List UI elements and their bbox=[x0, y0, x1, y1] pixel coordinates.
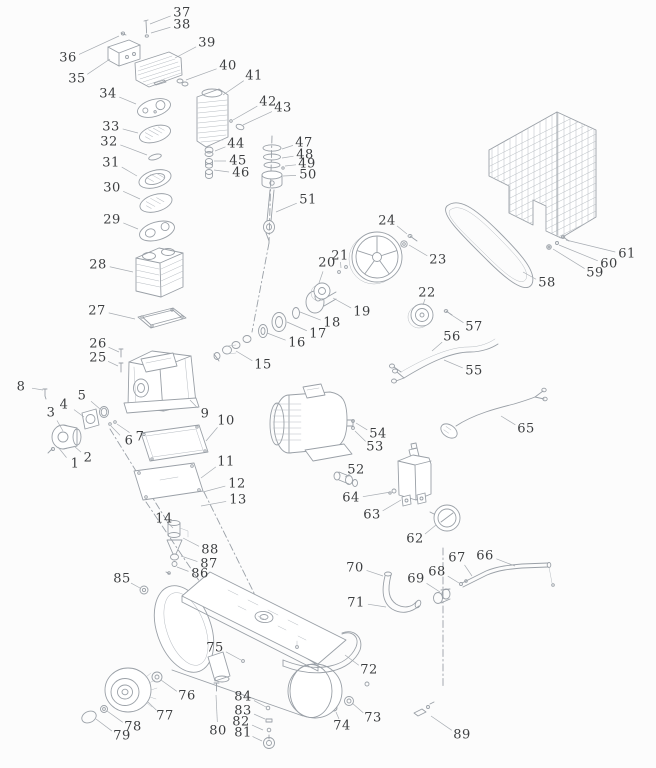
part-label-62: 62 bbox=[406, 532, 424, 547]
part-label-19: 19 bbox=[353, 305, 371, 320]
part-label-14: 14 bbox=[155, 512, 173, 527]
part-label-53: 53 bbox=[366, 440, 384, 455]
part-label-11: 11 bbox=[217, 455, 235, 470]
part-label-76: 76 bbox=[178, 689, 196, 704]
part-label-84: 84 bbox=[234, 690, 252, 705]
part-label-21: 21 bbox=[331, 249, 349, 264]
part-label-52: 52 bbox=[347, 463, 365, 478]
part-label-89: 89 bbox=[453, 728, 471, 743]
part-label-65: 65 bbox=[517, 422, 535, 437]
part-label-32: 32 bbox=[100, 135, 118, 150]
part-label-67: 67 bbox=[448, 551, 466, 566]
part-label-73: 73 bbox=[364, 711, 382, 726]
part-label-23: 23 bbox=[429, 253, 447, 268]
part-label-63: 63 bbox=[363, 508, 381, 523]
part-label-83: 83 bbox=[234, 704, 252, 719]
part-label-16: 16 bbox=[288, 336, 306, 351]
part-label-79: 79 bbox=[113, 729, 131, 744]
part-label-6: 6 bbox=[125, 434, 134, 449]
part-label-50: 50 bbox=[299, 168, 317, 183]
part-label-30: 30 bbox=[103, 181, 121, 196]
part-label-77: 77 bbox=[156, 709, 174, 724]
part-label-24: 24 bbox=[378, 214, 396, 229]
part-label-54: 54 bbox=[369, 427, 387, 442]
part-label-75: 75 bbox=[206, 641, 224, 656]
part-label-80: 80 bbox=[209, 724, 227, 739]
part-label-7: 7 bbox=[136, 430, 145, 445]
part-label-26: 26 bbox=[89, 337, 107, 352]
part-label-43: 43 bbox=[274, 101, 292, 116]
part-label-22: 22 bbox=[418, 286, 436, 301]
part-label-72: 72 bbox=[360, 663, 378, 678]
part-label-15: 15 bbox=[254, 358, 272, 373]
part-label-34: 34 bbox=[99, 87, 117, 102]
part-label-29: 29 bbox=[103, 213, 121, 228]
part-label-61: 61 bbox=[618, 247, 636, 262]
part-label-18: 18 bbox=[323, 316, 341, 331]
part-label-71: 71 bbox=[347, 596, 365, 611]
part-label-46: 46 bbox=[232, 166, 250, 181]
part-label-35: 35 bbox=[68, 72, 86, 87]
part-label-44: 44 bbox=[227, 137, 245, 152]
part-label-51: 51 bbox=[299, 193, 317, 208]
part-label-38: 38 bbox=[173, 18, 191, 33]
part-label-70: 70 bbox=[346, 561, 364, 576]
part-label-13: 13 bbox=[229, 493, 247, 508]
part-label-5: 5 bbox=[78, 389, 87, 404]
part-label-3: 3 bbox=[47, 406, 56, 421]
part-label-28: 28 bbox=[89, 258, 107, 273]
part-label-9: 9 bbox=[201, 407, 210, 422]
part-label-1: 1 bbox=[71, 457, 80, 472]
part-label-41: 41 bbox=[245, 69, 263, 84]
part-label-57: 57 bbox=[465, 320, 483, 335]
part-label-56: 56 bbox=[443, 330, 461, 345]
part-label-36: 36 bbox=[59, 51, 77, 66]
part-label-64: 64 bbox=[342, 491, 360, 506]
part-label-10: 10 bbox=[217, 414, 235, 429]
part-label-87: 87 bbox=[200, 557, 218, 572]
part-label-60: 60 bbox=[600, 257, 618, 272]
part-label-85: 85 bbox=[113, 572, 131, 587]
part-label-27: 27 bbox=[88, 304, 106, 319]
part-label-2: 2 bbox=[84, 451, 93, 466]
part-label-8: 8 bbox=[17, 380, 26, 395]
part-label-31: 31 bbox=[102, 156, 120, 171]
part-label-68: 68 bbox=[428, 565, 446, 580]
part-label-25: 25 bbox=[89, 351, 107, 366]
part-label-40: 40 bbox=[219, 59, 237, 74]
part-label-12: 12 bbox=[228, 477, 246, 492]
part-label-33: 33 bbox=[102, 120, 120, 135]
part-label-58: 58 bbox=[538, 276, 556, 291]
part-label-74: 74 bbox=[333, 719, 351, 734]
exploded-parts-diagram: 1234567891011121314151617181920212223242… bbox=[0, 0, 656, 768]
part-label-39: 39 bbox=[198, 36, 216, 51]
part-number-labels: 1234567891011121314151617181920212223242… bbox=[0, 0, 656, 768]
part-label-4: 4 bbox=[60, 398, 69, 413]
part-label-66: 66 bbox=[476, 549, 494, 564]
part-label-88: 88 bbox=[201, 543, 219, 558]
part-label-55: 55 bbox=[465, 364, 483, 379]
part-label-69: 69 bbox=[407, 572, 425, 587]
